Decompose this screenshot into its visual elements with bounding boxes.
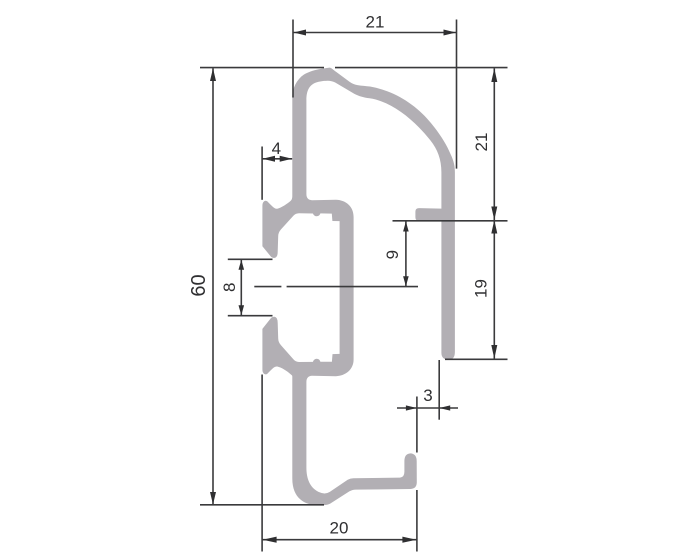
svg-text:60: 60 — [188, 274, 210, 296]
svg-text:21: 21 — [366, 12, 385, 31]
svg-text:3: 3 — [423, 386, 432, 405]
svg-text:4: 4 — [272, 139, 281, 158]
svg-text:9: 9 — [383, 250, 402, 259]
svg-text:8: 8 — [220, 283, 239, 292]
svg-text:19: 19 — [472, 279, 491, 298]
svg-text:20: 20 — [330, 519, 349, 538]
svg-text:21: 21 — [472, 133, 491, 152]
